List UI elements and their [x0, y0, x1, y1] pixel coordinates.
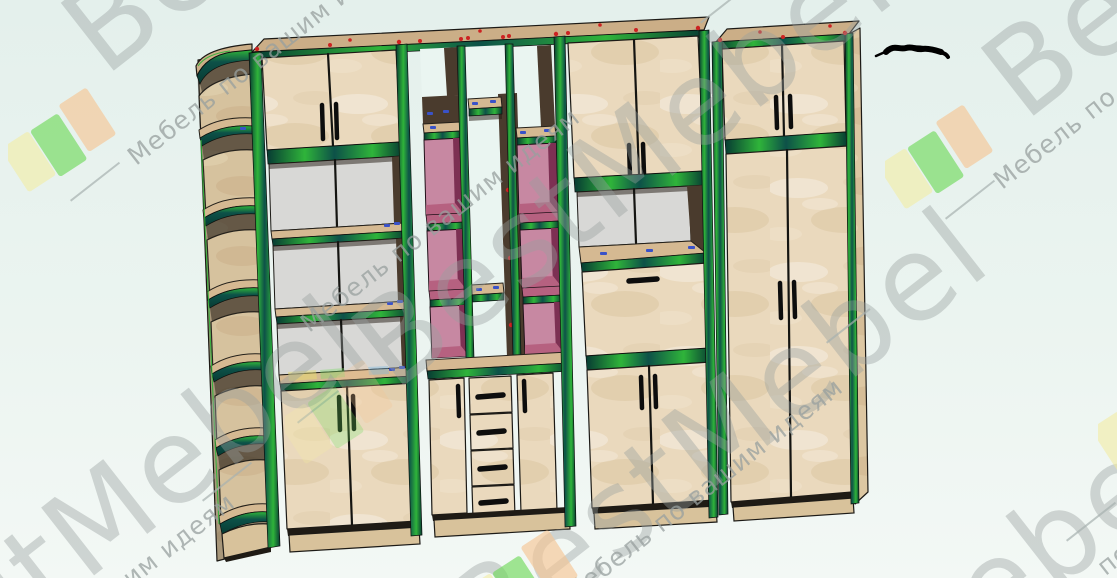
door-handle	[790, 96, 791, 127]
lower-left-door	[429, 378, 467, 515]
upper-doors	[568, 36, 704, 178]
door-handle	[655, 376, 656, 407]
door-handle	[524, 381, 525, 411]
lower-right-door	[517, 373, 557, 513]
door-handle	[322, 105, 323, 139]
door-handle	[780, 283, 781, 318]
open-shelf-row	[273, 238, 410, 324]
door-handle	[776, 97, 777, 128]
section-wardrobe	[722, 41, 854, 521]
door-handle	[458, 386, 459, 416]
desk-flap	[582, 263, 710, 356]
section-open-shelves	[420, 44, 570, 537]
open-niche	[577, 185, 707, 272]
lower-doors	[281, 383, 418, 529]
render-canvas: BestMebel BestMebel BestMebel BestMebel …	[0, 0, 1117, 578]
pink-cubby	[520, 228, 561, 288]
furniture-render	[0, 0, 1117, 578]
pink-cubby	[430, 305, 469, 358]
lower-doors	[587, 362, 715, 508]
drawer-handle	[481, 501, 506, 503]
ink-scribble-mark	[876, 47, 948, 57]
open-shelf-row	[269, 156, 406, 246]
pink-cubby	[523, 302, 564, 355]
door-handle	[643, 144, 644, 174]
drawer-stack	[469, 376, 515, 518]
corner-base	[219, 504, 271, 562]
door-handle	[794, 282, 795, 317]
pink-cubby	[427, 229, 466, 291]
pink-cubby	[424, 138, 463, 215]
upper-doors	[722, 41, 846, 140]
door-handle	[641, 377, 642, 408]
drawer-handle	[479, 431, 504, 433]
tall-doors	[726, 146, 852, 502]
drawer-handle	[478, 395, 503, 397]
door-handle	[353, 396, 354, 429]
door-handle	[339, 397, 340, 430]
flap-handle	[629, 279, 657, 281]
open-shelf-row	[277, 316, 414, 391]
door-handle	[336, 104, 337, 138]
door-handle	[629, 145, 630, 175]
pink-cubby	[517, 143, 558, 214]
upper-doors	[262, 50, 401, 150]
section-desk-cabinet	[568, 36, 717, 529]
section-left-cabinet	[262, 50, 420, 552]
drawer-handle	[480, 467, 505, 469]
